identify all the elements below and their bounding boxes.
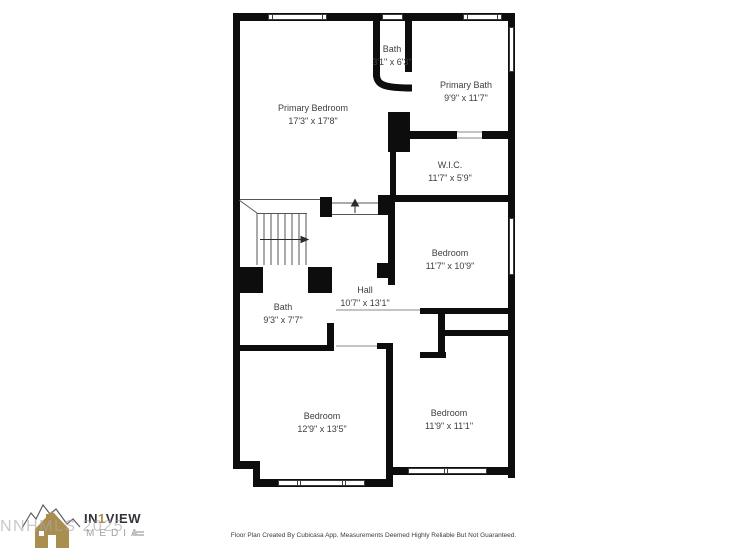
- room-label-bedroom-middle: Bedroom 11'7" x 10'9": [426, 247, 475, 272]
- window-mullion: [467, 14, 468, 20]
- wall-wic-bottom: [378, 195, 515, 202]
- wall-stair-block: [320, 197, 332, 217]
- room-label-wic: W.I.C. 11'7" x 5'9": [428, 159, 472, 184]
- wall-wic-top-b: [482, 131, 515, 139]
- room-label-bedroom-bottom-right: Bedroom 11'9" x 11'1": [425, 407, 473, 432]
- stairs-right-arrow-icon: [260, 237, 308, 243]
- wall-wic-left: [390, 139, 396, 199]
- room-label-primary-bath: Primary Bath 9'9" x 11'7": [440, 79, 492, 104]
- window-mullion: [342, 480, 343, 486]
- window-mullion: [444, 468, 445, 474]
- window-mullion: [322, 14, 323, 20]
- wall-hall-bedroom: [388, 202, 395, 285]
- room-label-bath-middle: Bath 9'3" x 7'7": [263, 301, 302, 326]
- wall-bath-block-a: [233, 267, 263, 293]
- plan-linework: [0, 0, 747, 560]
- wall-closet-top: [420, 308, 510, 314]
- wall-closet-bottom: [420, 352, 446, 358]
- stairs-up-arrow-icon: [352, 200, 359, 214]
- mls-watermark: NNHMLS 2025: [0, 518, 124, 536]
- window-mullion: [297, 480, 298, 486]
- window-mullion: [272, 14, 273, 20]
- wall-bath-block-b: [308, 267, 332, 293]
- room-label-primary-bedroom: Primary Bedroom 17'3" x 17'8": [278, 102, 348, 127]
- window-bottom-left-bedroom: [278, 480, 365, 486]
- curved-wall: [377, 74, 413, 88]
- wall-divider-stub: [377, 343, 392, 349]
- window-right-bedroom: [509, 218, 514, 275]
- window-top-bath: [382, 14, 403, 20]
- wall-door-jamb: [377, 263, 388, 278]
- window-mullion: [300, 480, 301, 486]
- wall-bath-bottom: [233, 345, 332, 351]
- wall-closet-middle: [445, 330, 508, 336]
- window-mullion: [447, 468, 448, 474]
- stairs-up-landing: [332, 203, 378, 215]
- window-mullion: [345, 480, 346, 486]
- floor-plan-page: { "floor_plan": { "wall_color": "#0d0d0d…: [0, 0, 747, 560]
- wall-left: [233, 13, 240, 469]
- wall-wic-top-a: [405, 131, 457, 139]
- room-label-hall: Hall 10'7" x 13'1": [340, 284, 389, 309]
- logo-fineprint: [133, 531, 144, 537]
- stairs: [239, 200, 320, 266]
- window-mullion: [497, 14, 498, 20]
- room-label-bedroom-bottom-left: Bedroom 12'9" x 13'5": [297, 410, 346, 435]
- wall-bedroom-divider: [386, 343, 393, 487]
- disclaimer-text: Floor Plan Created By Cubicasa App. Meas…: [231, 532, 516, 539]
- room-label-bath-upper: Bath 3'1" x 6'3": [372, 43, 411, 68]
- window-right-primary-bath: [509, 27, 514, 72]
- window-top-primary-bedroom: [268, 14, 327, 20]
